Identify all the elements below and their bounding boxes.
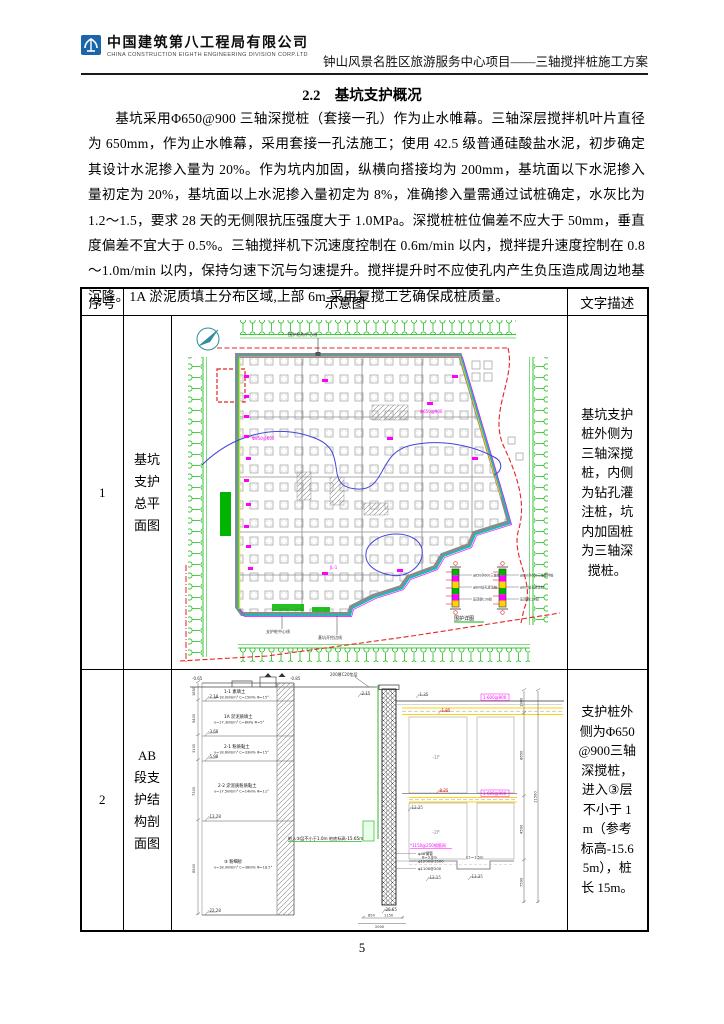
floor-label: -1F — [432, 755, 440, 761]
row2-label: AB 段支护结构剖面图 — [123, 670, 171, 931]
soil-dim: 3100 — [192, 743, 196, 753]
col-header-description: 文字描述 — [567, 288, 648, 316]
company-name: 中国建筑第八工程局有限公司 — [107, 35, 309, 50]
berm-dim: B=3.8m — [422, 855, 437, 859]
soil-layer-params: γ=18.6kN/m³ C=33kPa Φ=15° — [214, 750, 269, 754]
rebar-labels: φ48钢管 φ1200@1500 φ1100@200 — [396, 851, 444, 871]
elevation-label: -0.85 — [290, 676, 301, 681]
site-plan-diagram: Φ850@600 Φ650@900 JL-1 — [172, 317, 566, 669]
pile-toe-note: 桩入③层不小于1.0m 桩底标高-15.65m — [288, 835, 363, 842]
dim-label: 850 — [368, 913, 376, 917]
soil-dim: 1850 — [192, 686, 196, 696]
grid-ruler-top — [240, 320, 516, 338]
floor-label: -2F — [432, 830, 440, 836]
soil-dim: 8500 — [192, 863, 196, 873]
rebar-callout: 1-600@900 — [483, 791, 507, 796]
detail-caption: 围护详图 — [454, 615, 474, 622]
pile-bottom-elevation: -20.65 — [384, 907, 397, 912]
rebar-callout: 1-600@900 — [483, 695, 507, 700]
soil-layer-name: 2-2 淤泥质粉质黏土 — [218, 782, 257, 789]
detail-label: 压顶梁C30砼 — [473, 596, 493, 601]
soil-layer-params: γ=18.0kN/m³ C=15kPa Φ=15° — [214, 695, 269, 699]
layer-elevation: -22.28 — [208, 908, 221, 913]
company-logo: 中国建筑第八工程局有限公司 CHINA CONSTRUCTION EIGHTH … — [81, 35, 309, 58]
soil-dim: 5400 — [192, 713, 196, 723]
section-paragraph: 基坑采用Φ650@900 三轴深搅桩（套接一孔）作为止水帷幕。三轴深层搅拌机叶片… — [88, 106, 645, 309]
table-row: 2 AB 段支护结构剖面图 — [81, 670, 648, 931]
mixing-pile-wall — [379, 685, 399, 905]
plan-bottom-note: 基坑开挖边线 — [318, 634, 342, 640]
right-dimension-chain: 1900 8650 4500 7500 11500 — [520, 688, 541, 903]
row1-no: 1 — [81, 316, 123, 670]
section-heading: 2.2 基坑支护概况 — [0, 84, 724, 105]
col-header-diagram: 示意图 — [123, 288, 567, 316]
table-header-row: 序号 示意图 文字描述 — [81, 288, 648, 316]
bottom-dimension: 850 1150 2000 — [358, 913, 406, 929]
row2-no: 2 — [81, 670, 123, 931]
plan-top-note: 围护结构中心线 — [288, 331, 318, 338]
soil-layer-name: 2-1 粉质黏土 — [224, 743, 250, 750]
layer-elevation: -13.28 — [208, 814, 221, 819]
detail-label: φ800钻孔灌注桩 — [520, 584, 545, 589]
detail-label: φ850@600三轴搅拌桩 — [520, 572, 554, 577]
detail-label: φ800钻孔灌注桩 — [473, 584, 498, 589]
soil-layer-name: 1A 淤泥质填土 — [224, 713, 253, 720]
detail-label: 压顶梁C30砼 — [520, 596, 540, 601]
plan-annotation: Φ650@900 — [420, 409, 443, 414]
elevation-label: -1.85 — [440, 708, 451, 713]
dim-label: 7500 — [520, 877, 524, 887]
pile-toe-marker — [363, 821, 374, 841]
elevation-label: -13.15 — [428, 875, 441, 880]
layer-elevation: -3.68 — [208, 729, 219, 734]
header-rule — [81, 73, 648, 75]
cross-section-cell: -0.65 -0.85 200厚C20垫层 — [171, 670, 567, 931]
plan-bottom-note: 支护桩中心线 — [266, 628, 290, 634]
row2-description: 支护桩外侧为Φ650@900三轴深搅桩，进入③层不小于 1m（参考标高-15.6… — [567, 670, 648, 931]
soil-layer-params: γ=18.9kN/m³ C=38kPa Φ=18.5° — [214, 865, 273, 869]
company-subtitle: CHINA CONSTRUCTION EIGHTH ENGINEERING DI… — [107, 52, 309, 58]
cscec-logo-icon — [81, 35, 101, 55]
layer-elevation: -5.98 — [208, 754, 219, 759]
site-plan-cell: Φ850@600 Φ650@900 JL-1 — [171, 316, 567, 670]
plan-annotation: Φ850@600 — [252, 436, 275, 441]
document-page: 中国建筑第八工程局有限公司 CHINA CONSTRUCTION EIGHTH … — [0, 0, 724, 1024]
soil-layer-name: ③ 粉细砂 — [224, 858, 243, 865]
row1-label: 基坑支护总平面图 — [123, 316, 171, 670]
grid-ruler-bottom — [238, 644, 530, 662]
dim-label: 8650 — [520, 750, 524, 760]
page-header: 中国建筑第八工程局有限公司 CHINA CONSTRUCTION EIGHTH … — [81, 33, 648, 73]
soil-dim: 7300 — [192, 786, 196, 796]
soil-column: -2.18 -3.68 -5.98 -13.28 -22.28 1-1 素填土 … — [192, 680, 294, 915]
plan-annotation: JL-1 — [329, 565, 338, 570]
row1-description: 基坑支护桩外侧为三轴深搅桩，内侧为钻孔灌注桩，坑内加固桩为三轴深搅桩。 — [567, 316, 648, 670]
rebar-label: φ1100@200 — [418, 866, 442, 871]
soil-layer-params: γ=17.3kN/m³ C=8kPa Φ=5° — [214, 720, 265, 724]
pit-wall — [237, 355, 512, 617]
rebar-mesh-callout: *1150@250钢筋网 — [410, 842, 446, 848]
elevation-label: -1.35 — [418, 692, 429, 697]
elevation-label: -8.25 — [438, 788, 449, 793]
cross-section-diagram: -0.65 -0.85 200厚C20垫层 — [172, 671, 566, 929]
elevation-label: -0.65 — [192, 676, 203, 681]
document-title: 钟山风景名胜区旅游服务中心项目——三轴搅拌桩施工方案 — [323, 51, 648, 70]
pile-top-elevation: -2.15 — [360, 691, 371, 696]
berm-dim: C1=1.5m — [466, 855, 484, 859]
elevation-label: -13.35 — [470, 874, 483, 879]
dim-label: 1900 — [520, 697, 524, 707]
table-row: 1 基坑支护总平面图 — [81, 316, 648, 670]
blinding-layer-note: 200厚C20垫层 — [330, 671, 358, 677]
dim-label: 4500 — [520, 824, 524, 834]
dim-label: 11500 — [534, 790, 538, 802]
col-header-no: 序号 — [81, 288, 123, 316]
dim-label: 1150 — [384, 913, 394, 917]
elevation-label: -12.25 — [410, 805, 423, 810]
grid-ruler-left — [188, 357, 207, 657]
soil-layer-name: 1-1 素填土 — [224, 688, 246, 695]
north-compass-icon — [197, 328, 219, 350]
overview-table: 序号 示意图 文字描述 1 基坑支护总平面图 — [80, 287, 649, 932]
dim-label: 2000 — [375, 925, 385, 929]
page-number: 5 — [0, 941, 724, 956]
soil-layer-params: γ=17.5kN/m³ C=14kPa Φ=11° — [214, 789, 269, 793]
